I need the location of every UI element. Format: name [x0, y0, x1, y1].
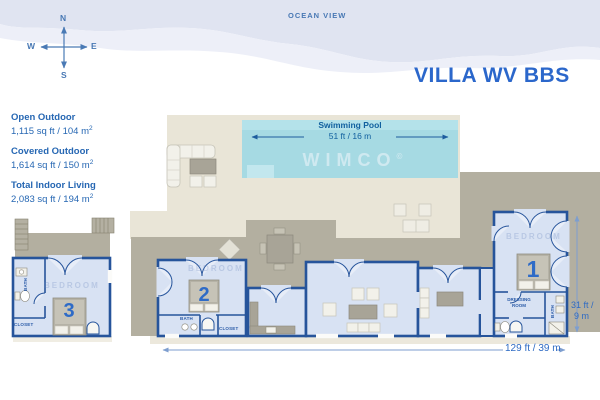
toilet [501, 322, 510, 333]
height-dimension-label-bottom: 9 m [574, 311, 589, 321]
compass-west-label: W [27, 41, 35, 51]
compass-east-label: E [91, 41, 97, 51]
height-dimension-label-top: 31 ft / [571, 300, 594, 310]
stat-value: 1,115 sq ft / 104 m2 [11, 123, 96, 137]
bedroom-2-closet-label: CLOSET [219, 326, 238, 331]
bedroom-3-number: 3 [58, 300, 80, 323]
sink [182, 324, 188, 330]
bedroom-1-bath-label: BATH [550, 305, 555, 318]
bedroom-2-number: 2 [193, 284, 215, 307]
compass-south-label: S [61, 70, 67, 80]
dressing-room-label: DRESSING ROOM [496, 297, 542, 309]
stat-value: 2,083 sq ft / 194 m2 [11, 191, 96, 205]
stat-label: Open Outdoor [11, 112, 96, 123]
stat-total-indoor: Total Indoor Living 2,083 sq ft / 194 m2 [11, 180, 96, 205]
bedroom-1-watermark: BEDROOM [506, 232, 562, 241]
stat-label: Covered Outdoor [11, 146, 96, 157]
stat-value: 1,614 sq ft / 150 m2 [11, 157, 96, 171]
compass-north-label: N [60, 13, 66, 23]
stat-label: Total Indoor Living [11, 180, 96, 191]
bedroom-3-watermark: BEDROOM [44, 281, 100, 290]
ocean-view-label: OCEAN VIEW [288, 11, 346, 20]
pool-dimension-label: 51 ft / 16 m [250, 131, 450, 141]
bedroom-3-bath-label: BATH [23, 278, 28, 291]
floorplan-canvas: OCEAN VIEW VILLA WV BBS N S W E Open Out… [0, 0, 600, 400]
sink [556, 306, 564, 313]
pool-label: Swimming Pool [250, 120, 450, 130]
stat-open-outdoor: Open Outdoor 1,115 sq ft / 104 m2 [11, 112, 96, 137]
coffee-table [190, 159, 216, 174]
sink [556, 296, 564, 303]
kitchen-sink [266, 327, 276, 333]
pool-steps [247, 165, 274, 178]
toilet [21, 291, 30, 302]
width-dimension-label: 129 ft / 39 m [505, 343, 561, 354]
bedroom-1-number: 1 [521, 256, 545, 283]
sink [191, 324, 197, 330]
area-stats: Open Outdoor 1,115 sq ft / 104 m2 Covere… [11, 112, 96, 214]
bedroom-2-watermark: BEDROOM [188, 264, 244, 273]
stat-covered-outdoor: Covered Outdoor 1,614 sq ft / 150 m2 [11, 146, 96, 171]
bedroom-2-bath-label: BATH [180, 316, 193, 321]
wimco-watermark: WIMCO© [295, 150, 410, 171]
page-title: VILLA WV BBS [414, 64, 570, 88]
bedroom-3-closet-label: CLOSET [14, 322, 33, 327]
